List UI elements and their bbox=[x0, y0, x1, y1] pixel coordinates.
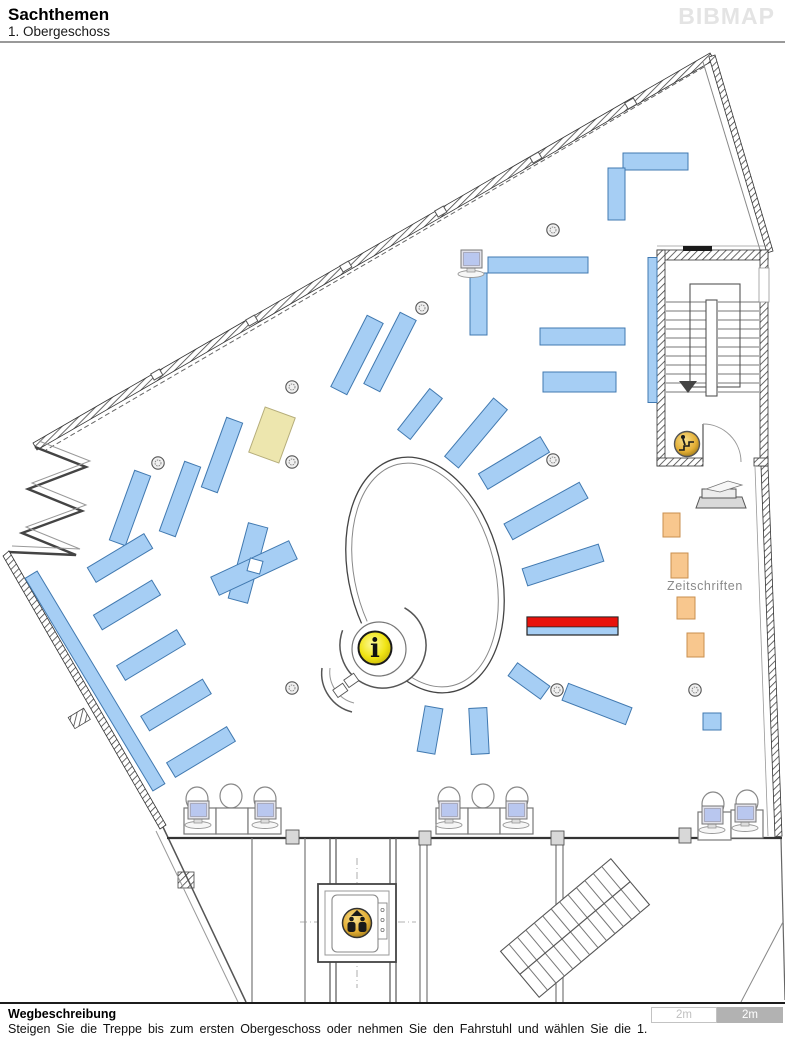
person-body bbox=[348, 922, 356, 932]
shelf-highlight[interactable] bbox=[527, 617, 618, 635]
computer-icon[interactable] bbox=[503, 801, 529, 829]
shelf-orange[interactable] bbox=[663, 513, 680, 537]
shelf-blue[interactable] bbox=[398, 389, 443, 440]
column-outer bbox=[547, 224, 559, 236]
stairs-circle[interactable] bbox=[675, 432, 700, 457]
shelf-blue[interactable] bbox=[479, 437, 550, 490]
column-outer bbox=[286, 381, 298, 393]
info-icon[interactable]: i bbox=[359, 632, 392, 665]
chair bbox=[472, 784, 494, 808]
shelf-rect[interactable] bbox=[167, 727, 236, 778]
column-marker bbox=[286, 456, 298, 468]
shelf-rect[interactable] bbox=[201, 417, 242, 492]
column-marker bbox=[689, 684, 701, 696]
shelf-blue[interactable] bbox=[417, 706, 443, 754]
staircase-room bbox=[657, 246, 769, 466]
column-marker bbox=[286, 682, 298, 694]
desk bbox=[216, 808, 248, 834]
shelf-blue[interactable] bbox=[159, 461, 200, 536]
furniture-layer bbox=[184, 250, 763, 845]
shelf-blue[interactable] bbox=[522, 544, 604, 586]
shelf-blue[interactable] bbox=[167, 727, 236, 778]
shelf-rect[interactable] bbox=[608, 168, 625, 220]
corridor-walls bbox=[252, 838, 563, 1002]
wall-box bbox=[286, 830, 299, 844]
computer-screen bbox=[442, 804, 458, 817]
footer: Wegbeschreibung Steigen Sie die Treppe b… bbox=[0, 1002, 785, 1043]
scale-segment-light: 2m bbox=[651, 1007, 717, 1023]
shelf-blue[interactable] bbox=[648, 258, 657, 403]
shelf-blue[interactable] bbox=[201, 417, 242, 492]
shelf-blue[interactable] bbox=[562, 683, 632, 724]
wall-box bbox=[419, 831, 431, 845]
computer-screen bbox=[464, 253, 480, 266]
shelf-highlight-band[interactable] bbox=[527, 617, 618, 627]
info-glyph: i bbox=[370, 634, 380, 664]
map-scale: 2m 2m bbox=[651, 1007, 783, 1023]
shelf-rect[interactable] bbox=[677, 597, 695, 619]
wall-box bbox=[679, 828, 691, 843]
shelf-rect[interactable] bbox=[141, 679, 211, 731]
column-marker bbox=[286, 381, 298, 393]
page-title: Sachthemen bbox=[8, 5, 785, 24]
wall-box bbox=[551, 831, 564, 845]
shelf-rect[interactable] bbox=[417, 706, 443, 754]
shelf-rect[interactable] bbox=[703, 713, 721, 730]
directions-text: Steigen Sie die Treppe bis zum ersten Ob… bbox=[8, 1022, 785, 1036]
computer-screen bbox=[258, 804, 274, 817]
person-head bbox=[360, 917, 365, 922]
shelf-rect[interactable] bbox=[648, 258, 657, 403]
shelf-gap[interactable] bbox=[247, 558, 263, 574]
shelf-blue[interactable] bbox=[608, 168, 625, 220]
shelf-blue[interactable] bbox=[504, 482, 588, 539]
shelf-blue[interactable] bbox=[508, 663, 550, 699]
shelf-rect[interactable] bbox=[445, 398, 508, 468]
column-outer bbox=[286, 456, 298, 468]
column-outer bbox=[416, 302, 428, 314]
shelf-rect[interactable] bbox=[508, 663, 550, 699]
shelf-rect[interactable] bbox=[687, 633, 704, 657]
shelf-rect[interactable] bbox=[623, 153, 688, 170]
shelf-rect[interactable] bbox=[543, 372, 616, 392]
shelf-rect[interactable] bbox=[247, 558, 263, 574]
desk bbox=[468, 808, 500, 834]
elevator-icon[interactable] bbox=[343, 909, 372, 938]
shelf-rect[interactable] bbox=[398, 389, 443, 440]
shelf-blue[interactable] bbox=[470, 273, 487, 335]
computer-icon[interactable] bbox=[436, 801, 462, 829]
floor-plan-map[interactable]: i Zeitschriften bbox=[0, 0, 785, 1043]
computer-screen bbox=[738, 807, 754, 820]
computer-icon[interactable] bbox=[185, 801, 211, 829]
shelf-blue[interactable] bbox=[623, 153, 688, 170]
floor-subtitle: 1. Obergeschoss bbox=[8, 24, 785, 40]
computer-screen bbox=[191, 804, 207, 817]
shelf-rect[interactable] bbox=[522, 544, 604, 586]
diagonal-staircase bbox=[501, 859, 650, 998]
column-marker bbox=[416, 302, 428, 314]
column-outer bbox=[551, 684, 563, 696]
computer-screen bbox=[509, 804, 525, 817]
zone-label: Zeitschriften bbox=[667, 579, 743, 593]
shelf-rect[interactable] bbox=[671, 553, 688, 578]
shelf-rect[interactable] bbox=[479, 437, 550, 490]
person-head bbox=[349, 917, 354, 922]
column-marker bbox=[547, 454, 559, 466]
shelf-rect[interactable] bbox=[159, 461, 200, 536]
shelf-blue[interactable] bbox=[93, 580, 160, 630]
shelf-rect[interactable] bbox=[470, 273, 487, 335]
shelf-beige[interactable] bbox=[249, 407, 295, 463]
shelf-rect[interactable] bbox=[540, 328, 625, 345]
stairs-down-icon[interactable] bbox=[675, 432, 700, 457]
shelf-orange[interactable] bbox=[687, 633, 704, 657]
computer-icon[interactable] bbox=[252, 801, 278, 829]
shelf-blue[interactable] bbox=[543, 372, 616, 392]
shelf-blue[interactable] bbox=[703, 713, 721, 730]
shelf-rect[interactable] bbox=[504, 482, 588, 539]
column-outer bbox=[152, 457, 164, 469]
shelf-rect[interactable] bbox=[117, 630, 186, 681]
shelf-rect[interactable] bbox=[663, 513, 680, 537]
shelf-blue[interactable] bbox=[141, 679, 211, 731]
shelf-blue[interactable] bbox=[540, 328, 625, 345]
computer-icon[interactable] bbox=[699, 806, 725, 834]
shelf-blue[interactable] bbox=[488, 257, 588, 273]
shelf-blue[interactable] bbox=[469, 708, 489, 755]
shelf-rect[interactable] bbox=[93, 580, 160, 630]
shelf-rect[interactable] bbox=[488, 257, 588, 273]
column-outer bbox=[547, 454, 559, 466]
labels-layer: Zeitschriften bbox=[667, 579, 743, 593]
shelf-orange[interactable] bbox=[671, 553, 688, 578]
walker-head bbox=[681, 435, 685, 439]
computer-screen bbox=[705, 809, 721, 822]
copier-icon[interactable] bbox=[696, 481, 746, 508]
shelf-rect[interactable] bbox=[562, 683, 632, 724]
shelf-orange[interactable] bbox=[677, 597, 695, 619]
computer-icon[interactable] bbox=[732, 804, 758, 832]
column-marker bbox=[547, 224, 559, 236]
shelf-rect[interactable] bbox=[249, 407, 295, 463]
computer-icon[interactable] bbox=[458, 250, 484, 278]
column-marker bbox=[152, 457, 164, 469]
shelf-blue[interactable] bbox=[117, 630, 186, 681]
scale-segment-dark: 2m bbox=[717, 1007, 783, 1023]
chair bbox=[220, 784, 242, 808]
copier-lid bbox=[706, 481, 742, 492]
person-body bbox=[359, 922, 367, 932]
column-outer bbox=[689, 684, 701, 696]
copier-base bbox=[696, 497, 746, 508]
column-marker bbox=[551, 684, 563, 696]
column-outer bbox=[286, 682, 298, 694]
header: Sachthemen 1. Obergeschoss BIBMAP bbox=[0, 0, 785, 43]
bibmap-logo: BIBMAP bbox=[678, 3, 775, 30]
bibmap-page: i Zeitschriften Sachthemen 1. Obergescho… bbox=[0, 0, 785, 1043]
shelf-rect[interactable] bbox=[469, 708, 489, 755]
shelf-blue[interactable] bbox=[445, 398, 508, 468]
